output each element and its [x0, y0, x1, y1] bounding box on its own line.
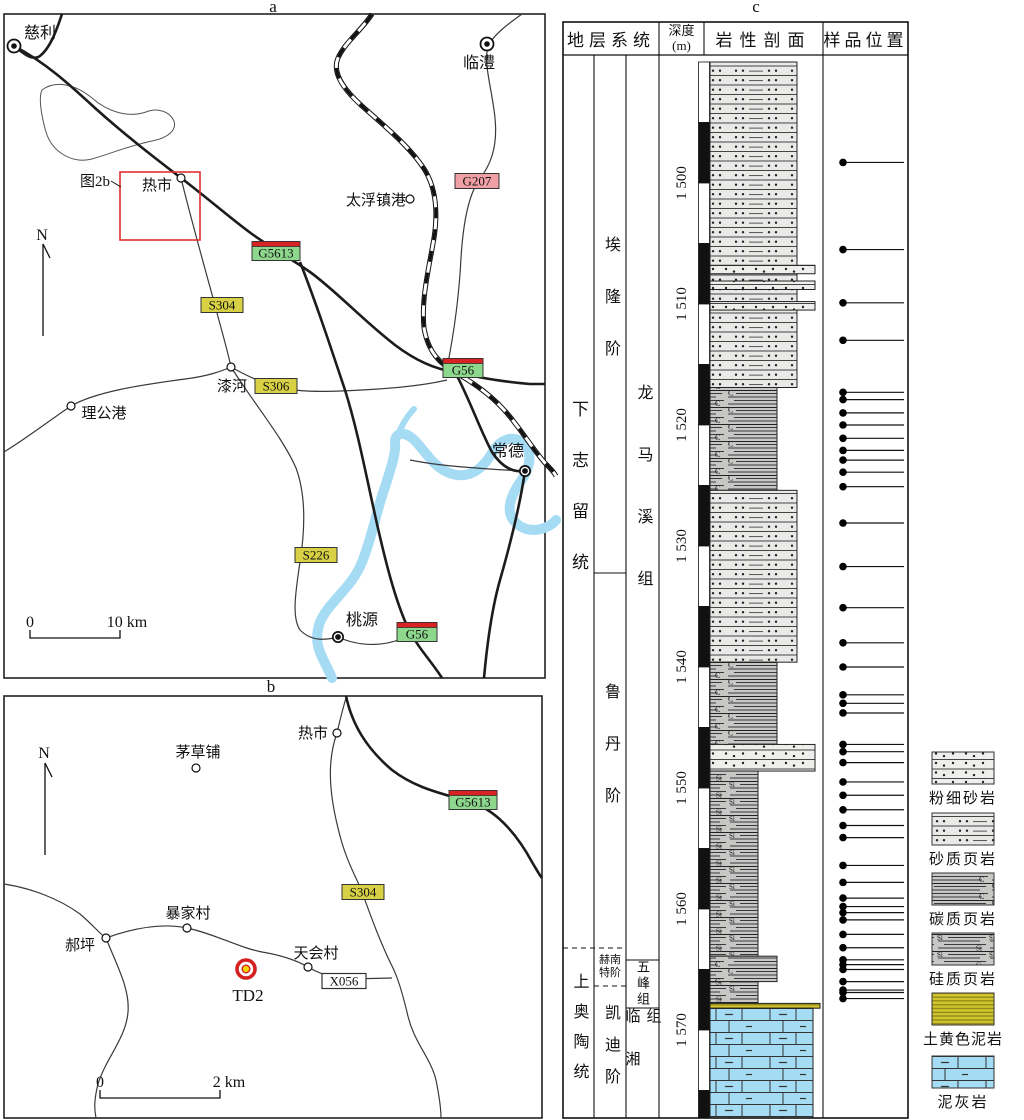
map-a: N 0 10 km 慈利 临澧 常德 桃源 热市 太浮镇港 漆河 理公港 图2b — [4, 14, 556, 678]
ruler-block — [699, 546, 710, 607]
panel-c-title: c — [752, 0, 760, 16]
stage-hirnantian-row1: 赫南 — [599, 954, 621, 967]
city-label-cili: 慈利 — [24, 24, 56, 42]
sample-dot — [839, 791, 847, 799]
bed-yellow-mudstone — [710, 1003, 820, 1008]
map-b-border — [4, 696, 542, 1118]
figure: C C Si Si — [0, 0, 1024, 1120]
sample-dot — [839, 916, 847, 924]
ruler-block — [699, 849, 710, 910]
sample-dot — [839, 806, 847, 814]
road-chip-g5613-a: G5613 — [252, 242, 300, 261]
sample-dot — [839, 741, 847, 749]
header-strat-system: 地层系统 — [563, 22, 659, 55]
svg-text:碳质页岩: 碳质页岩 — [929, 911, 997, 928]
depth-tick-label: 1 570 — [674, 1013, 690, 1047]
bed-fine-sandstone — [710, 281, 815, 289]
legend-item-fine-sandstone: 粉细砂岩 — [929, 752, 997, 807]
city-label-linli: 临澧 — [463, 54, 495, 72]
svg-text:X056: X056 — [330, 974, 359, 989]
ruler-block — [699, 425, 710, 486]
town-label-reshi-a: 热市 — [142, 177, 172, 194]
town-marker-baojiacun — [183, 924, 191, 932]
well-td2-label: TD2 — [232, 986, 263, 1005]
stage-hirnantian-row2: 特阶 — [599, 967, 621, 980]
town-label-qihe: 漆河 — [217, 378, 247, 395]
sample-dot — [839, 447, 847, 455]
road-chip-g5613-b: G5613 — [449, 791, 497, 810]
ruler-block — [699, 244, 710, 305]
town-label-taifuzhen: 太浮镇港 — [346, 192, 406, 209]
sample-dot — [839, 778, 847, 786]
town-label-baojiacun: 暴家村 — [165, 905, 210, 922]
header-sample-position: 样品位置 — [823, 22, 908, 55]
ruler-block — [699, 123, 710, 184]
sample-dot — [839, 862, 847, 870]
sample-dot — [839, 246, 847, 254]
road-chip-s306: S306 — [255, 379, 297, 394]
bed-siliceous-shale — [710, 982, 758, 1004]
svg-text:G5613: G5613 — [258, 246, 293, 261]
formation-wufeng: 五峰组 — [626, 960, 659, 1008]
ruler-block — [699, 304, 710, 365]
map-b: N 0 2 km 热市 茅草铺 暴家村 郝坪 天会村 TD2 G5613 — [4, 696, 542, 1118]
road-chip-s304-a: S304 — [201, 298, 243, 313]
sample-dot — [839, 759, 847, 767]
bed-fine-sandstone — [710, 302, 815, 310]
sample-dot — [839, 435, 847, 443]
city-marker-taoyuan — [332, 631, 344, 643]
sample-dot — [839, 879, 847, 887]
scalebar-b-label: 2 km — [213, 1074, 246, 1091]
formation-linxiang: 临湘组 — [626, 1008, 659, 1118]
ruler-block — [699, 365, 710, 426]
svg-text:G56: G56 — [406, 627, 429, 642]
sample-dot — [839, 691, 847, 699]
svg-text:土黄色泥岩: 土黄色泥岩 — [923, 1031, 1003, 1048]
bed-fine-sandstone — [710, 744, 815, 771]
legend-item-carbonaceous-shale: 碳质页岩 — [929, 873, 997, 928]
sample-dot — [839, 931, 847, 939]
city-marker-cili — [8, 40, 21, 53]
depth-tick-label: 1 550 — [674, 771, 690, 805]
bed-carbonaceous-shale — [710, 956, 777, 981]
sample-dot — [839, 944, 847, 952]
series-lower-silurian: 下志留统 — [563, 55, 594, 948]
sample-dot — [839, 834, 847, 842]
sample-dot — [839, 966, 847, 974]
north-label-a: N — [36, 227, 48, 244]
road-chip-g207: G207 — [455, 174, 499, 189]
ruler-block — [699, 183, 710, 244]
depth-tick-label: 1 530 — [674, 529, 690, 563]
stage-rhuddanian: 鲁丹阶 — [594, 573, 626, 948]
sample-dot — [839, 700, 847, 708]
svg-text:G5613: G5613 — [455, 795, 490, 810]
ruler-block — [699, 1091, 710, 1119]
city-label-changde: 常德 — [492, 442, 524, 460]
panel-b-title: b — [267, 677, 276, 696]
depth-tick-label: 1 510 — [674, 287, 690, 321]
legend-item-marl: 泥灰岩 — [932, 1056, 994, 1111]
stage-hirnantian: 赫南 特阶 — [595, 950, 625, 984]
depth-tick-labels: 1 5001 5101 5201 5301 5401 5501 5601 570 — [674, 166, 690, 1047]
town-marker-maocaopu — [192, 764, 200, 772]
road-chip-x056: X056 — [322, 974, 366, 989]
ruler-block — [699, 486, 710, 547]
sample-dot — [839, 748, 847, 756]
town-label-reshi-b: 热市 — [298, 725, 328, 742]
town-label-ligonggang: 理公港 — [81, 405, 126, 422]
road-chip-s304-b: S304 — [342, 885, 384, 900]
svg-text:S226: S226 — [303, 548, 330, 563]
bed-carbonaceous-shale — [710, 662, 777, 744]
bed-sandy-shale — [710, 62, 797, 387]
bed-carbonaceous-shale — [710, 387, 777, 490]
city-marker-changde — [519, 465, 531, 477]
ruler-block — [699, 970, 710, 1031]
sample-dot — [839, 563, 847, 571]
sample-dot — [839, 396, 847, 404]
header-depth-unit: (m) — [672, 39, 691, 54]
depth-tick-label: 1 520 — [674, 408, 690, 442]
svg-text:G207: G207 — [463, 174, 492, 189]
road-chip-s226: S226 — [295, 548, 337, 563]
town-marker-taifuzhen — [406, 195, 414, 203]
stage-aeronian: 埃隆阶 — [594, 55, 626, 573]
sample-dot — [839, 604, 847, 612]
sample-dot — [839, 389, 847, 397]
ruler-block — [699, 607, 710, 668]
sample-dot — [839, 337, 847, 345]
town-label-maocaopu: 茅草铺 — [175, 744, 220, 761]
sample-dot — [839, 519, 847, 527]
ruler-block — [699, 62, 710, 123]
city-marker-linli — [481, 38, 494, 51]
inset-label: 图2b — [80, 173, 110, 190]
map-a-border — [4, 14, 545, 678]
scalebar-a-label: 10 km — [107, 614, 148, 631]
sample-dot — [839, 456, 847, 464]
sample-dot — [839, 822, 847, 830]
svg-text:粉细砂岩: 粉细砂岩 — [929, 790, 997, 807]
svg-text:硅质页岩: 硅质页岩 — [929, 971, 997, 988]
town-marker-qihe — [227, 363, 235, 371]
sample-dot — [839, 663, 847, 671]
depth-ruler — [699, 62, 710, 1118]
svg-text:S304: S304 — [350, 885, 377, 900]
svg-text:泥灰岩: 泥灰岩 — [937, 1094, 988, 1111]
figure-graphics: C C Si Si — [0, 0, 1024, 1120]
series-upper-ordovician: 上奥陶统 — [563, 948, 594, 1118]
town-marker-tianhuicun — [304, 963, 312, 971]
town-marker-reshi — [177, 174, 185, 182]
well-td2-marker — [237, 960, 255, 978]
scalebar-a-zero: 0 — [26, 614, 34, 631]
legend-item-yellow-mudstone: 土黄色泥岩 — [923, 993, 1003, 1048]
sample-dot — [839, 978, 847, 986]
sample-markers — [839, 159, 904, 1003]
ruler-block — [699, 909, 710, 970]
depth-tick-label: 1 540 — [674, 650, 690, 684]
town-marker-ligonggang — [67, 402, 75, 410]
scalebar-b-zero: 0 — [96, 1074, 104, 1091]
legend-item-sandy-shale: 砂质页岩 — [929, 813, 997, 868]
svg-text:S304: S304 — [209, 298, 236, 313]
sample-dot — [839, 468, 847, 476]
north-label-b: N — [38, 745, 50, 762]
ruler-block — [699, 667, 710, 728]
depth-tick-label: 1 500 — [674, 166, 690, 200]
legend-item-siliceous-shale: 硅质页岩 — [929, 933, 997, 988]
town-label-haoping: 郝坪 — [65, 936, 95, 954]
header-lithology: 岩性剖面 — [704, 22, 823, 55]
ruler-block — [699, 728, 710, 789]
ruler-block — [699, 788, 710, 849]
sample-dot — [839, 909, 847, 917]
svg-text:G56: G56 — [452, 363, 475, 378]
ruler-block — [699, 1030, 710, 1091]
road-chip-g56-junction: G56 — [443, 359, 483, 378]
bed-fine-sandstone — [710, 265, 815, 273]
sample-dot — [839, 639, 847, 647]
bed-marl — [710, 1008, 813, 1118]
sample-dot — [839, 995, 847, 1003]
town-label-tianhuicun: 天会村 — [293, 945, 338, 962]
sample-dot — [839, 159, 847, 167]
city-label-taoyuan: 桃源 — [346, 611, 378, 629]
panel-a-title: a — [269, 0, 277, 16]
sample-dot — [839, 299, 847, 307]
header-depth: 深度 (m) — [659, 22, 704, 55]
sample-dot — [839, 483, 847, 491]
road-chip-g56-south: G56 — [397, 623, 437, 642]
legend: 粉细砂岩 砂质页岩 碳质页岩 硅质页岩 土黄色泥岩 泥灰岩 — [923, 752, 1003, 1111]
sample-dot — [839, 709, 847, 717]
header-depth-text: 深度 — [668, 24, 694, 39]
sample-dot — [839, 409, 847, 417]
depth-tick-label: 1 560 — [674, 892, 690, 926]
sample-dot — [839, 421, 847, 429]
svg-text:砂质页岩: 砂质页岩 — [929, 851, 997, 868]
formation-longmaxi: 龙马溪组 — [626, 55, 659, 960]
sample-dot — [839, 894, 847, 902]
town-marker-haoping — [102, 934, 110, 942]
lithology-beds — [710, 62, 820, 1118]
svg-text:S306: S306 — [263, 379, 290, 394]
bed-sandy-shale — [710, 490, 797, 662]
town-marker-reshi-b — [333, 729, 341, 737]
bed-siliceous-shale — [710, 771, 758, 956]
